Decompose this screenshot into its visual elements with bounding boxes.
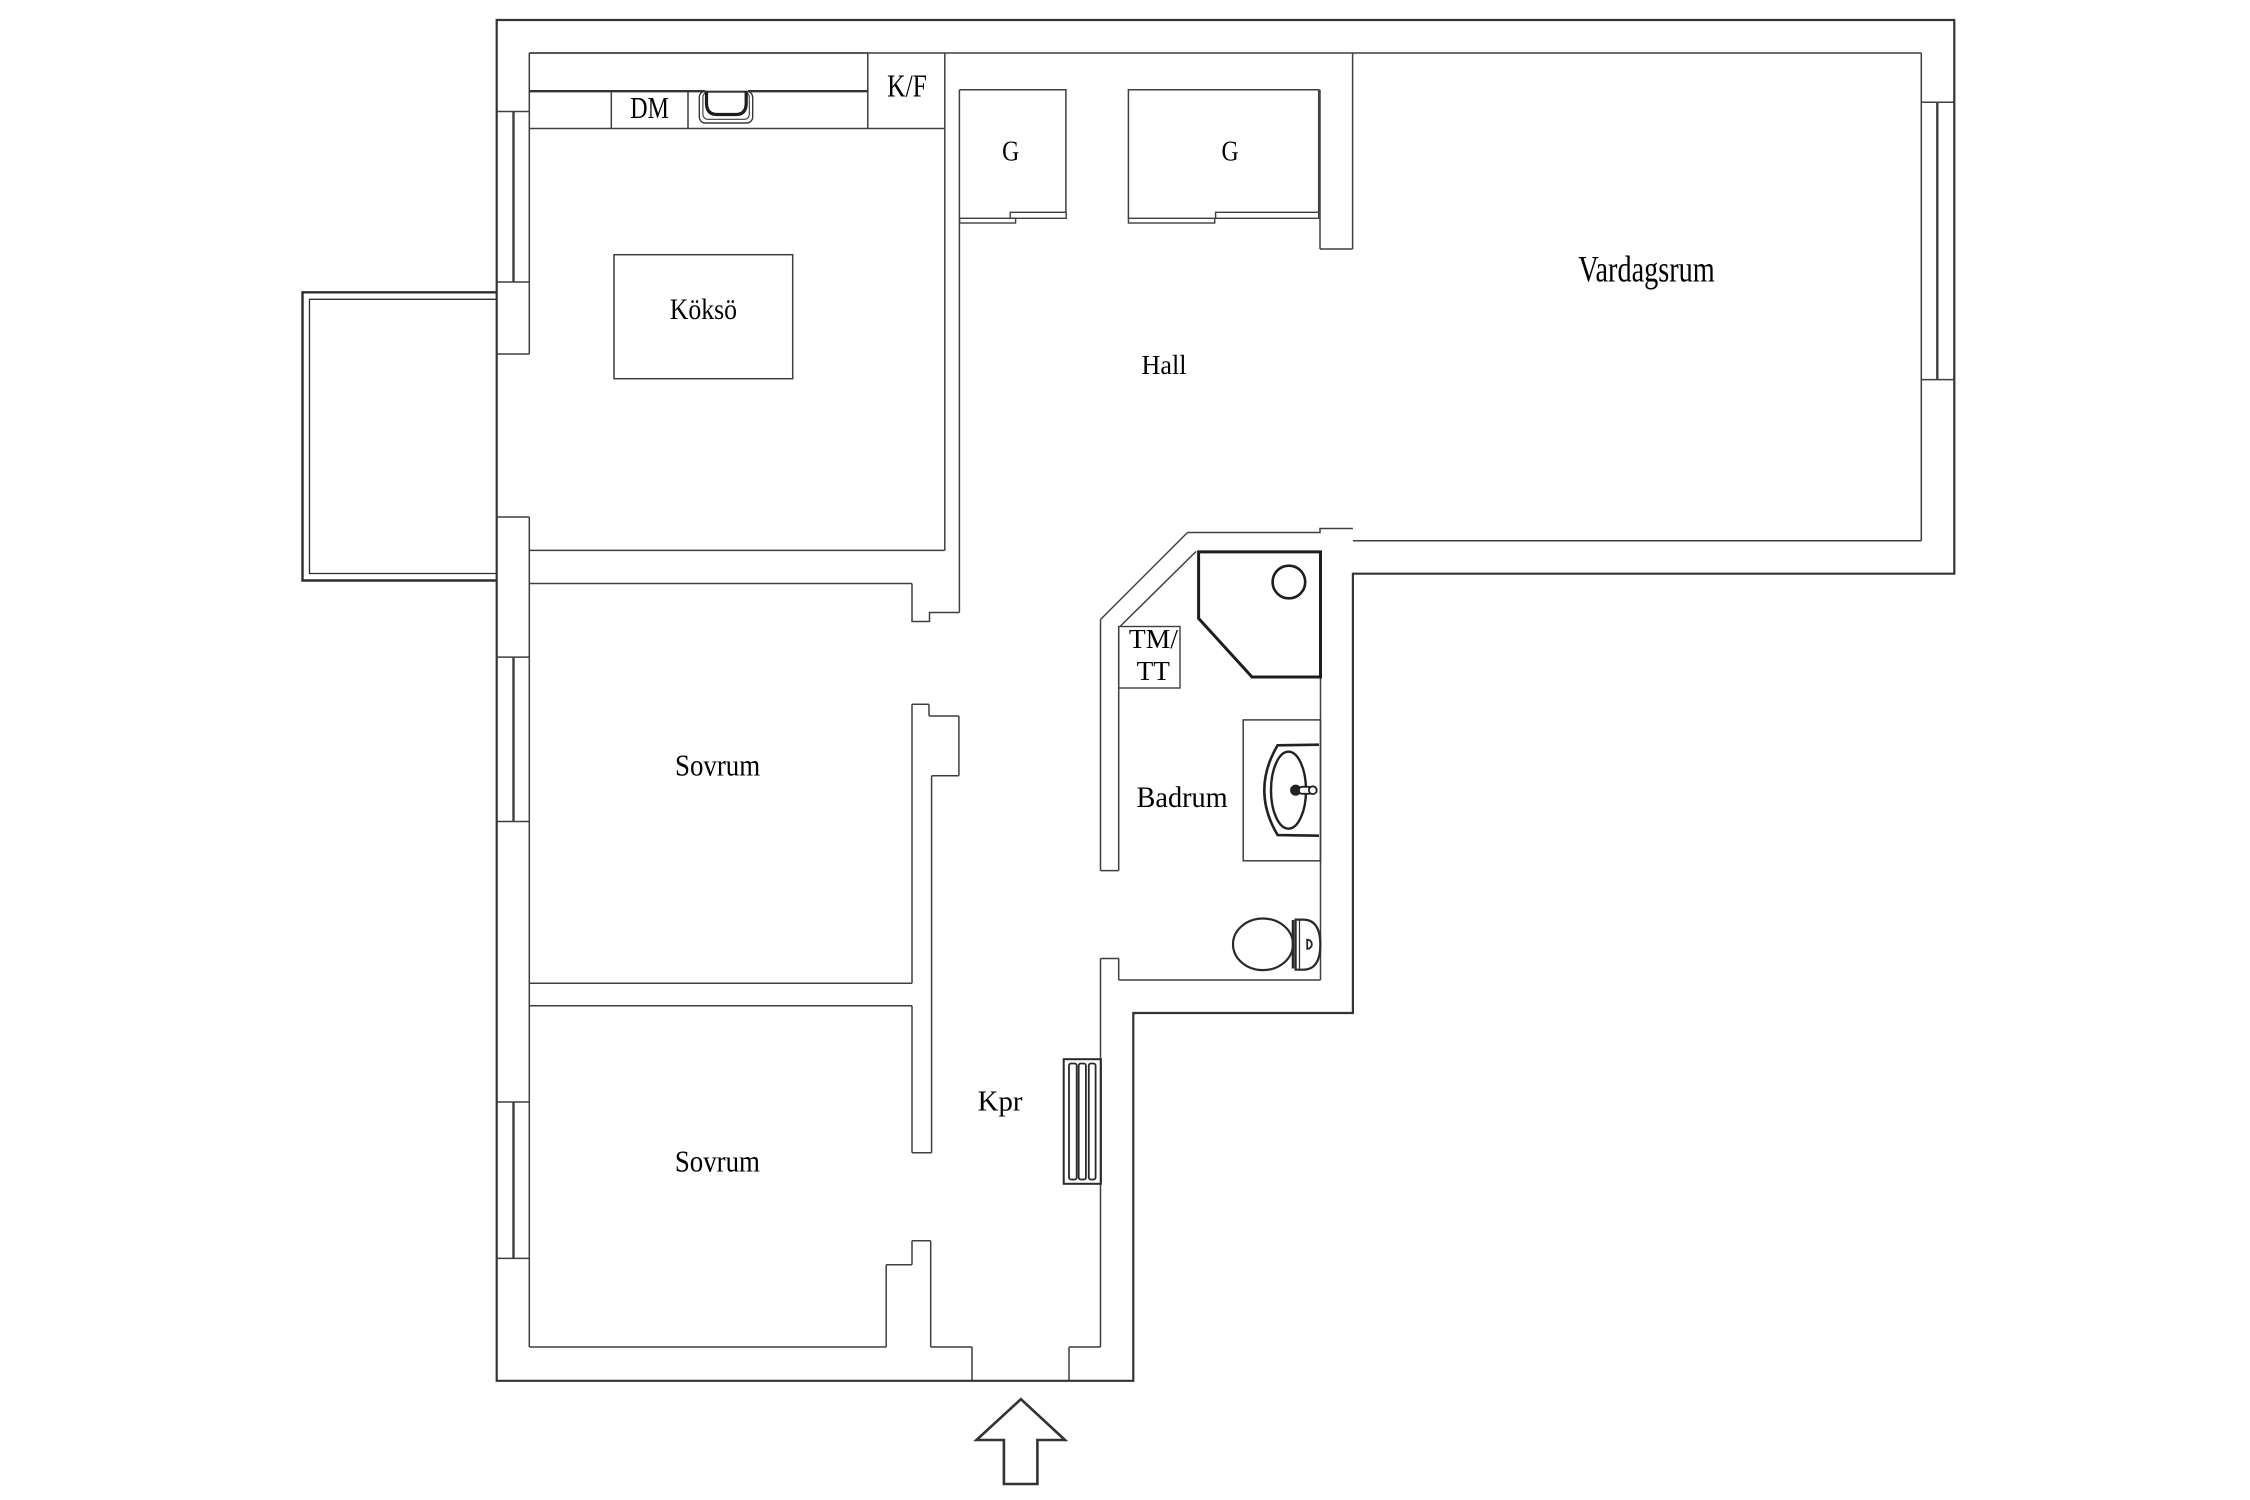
- svg-text:TT: TT: [1137, 656, 1171, 686]
- svg-text:Badrum: Badrum: [1137, 781, 1228, 814]
- svg-text:Köksö: Köksö: [670, 293, 737, 326]
- svg-text:Kpr: Kpr: [978, 1087, 1023, 1118]
- svg-text:DM: DM: [630, 90, 669, 125]
- svg-text:G: G: [1002, 135, 1019, 167]
- svg-text:K/F: K/F: [887, 68, 927, 104]
- svg-text:TM/: TM/: [1129, 624, 1178, 654]
- svg-text:Hall: Hall: [1142, 350, 1187, 380]
- svg-text:Sovrum: Sovrum: [675, 1144, 760, 1179]
- svg-text:G: G: [1221, 135, 1238, 167]
- svg-text:Vardagsrum: Vardagsrum: [1578, 249, 1715, 290]
- svg-text:Sovrum: Sovrum: [675, 747, 760, 782]
